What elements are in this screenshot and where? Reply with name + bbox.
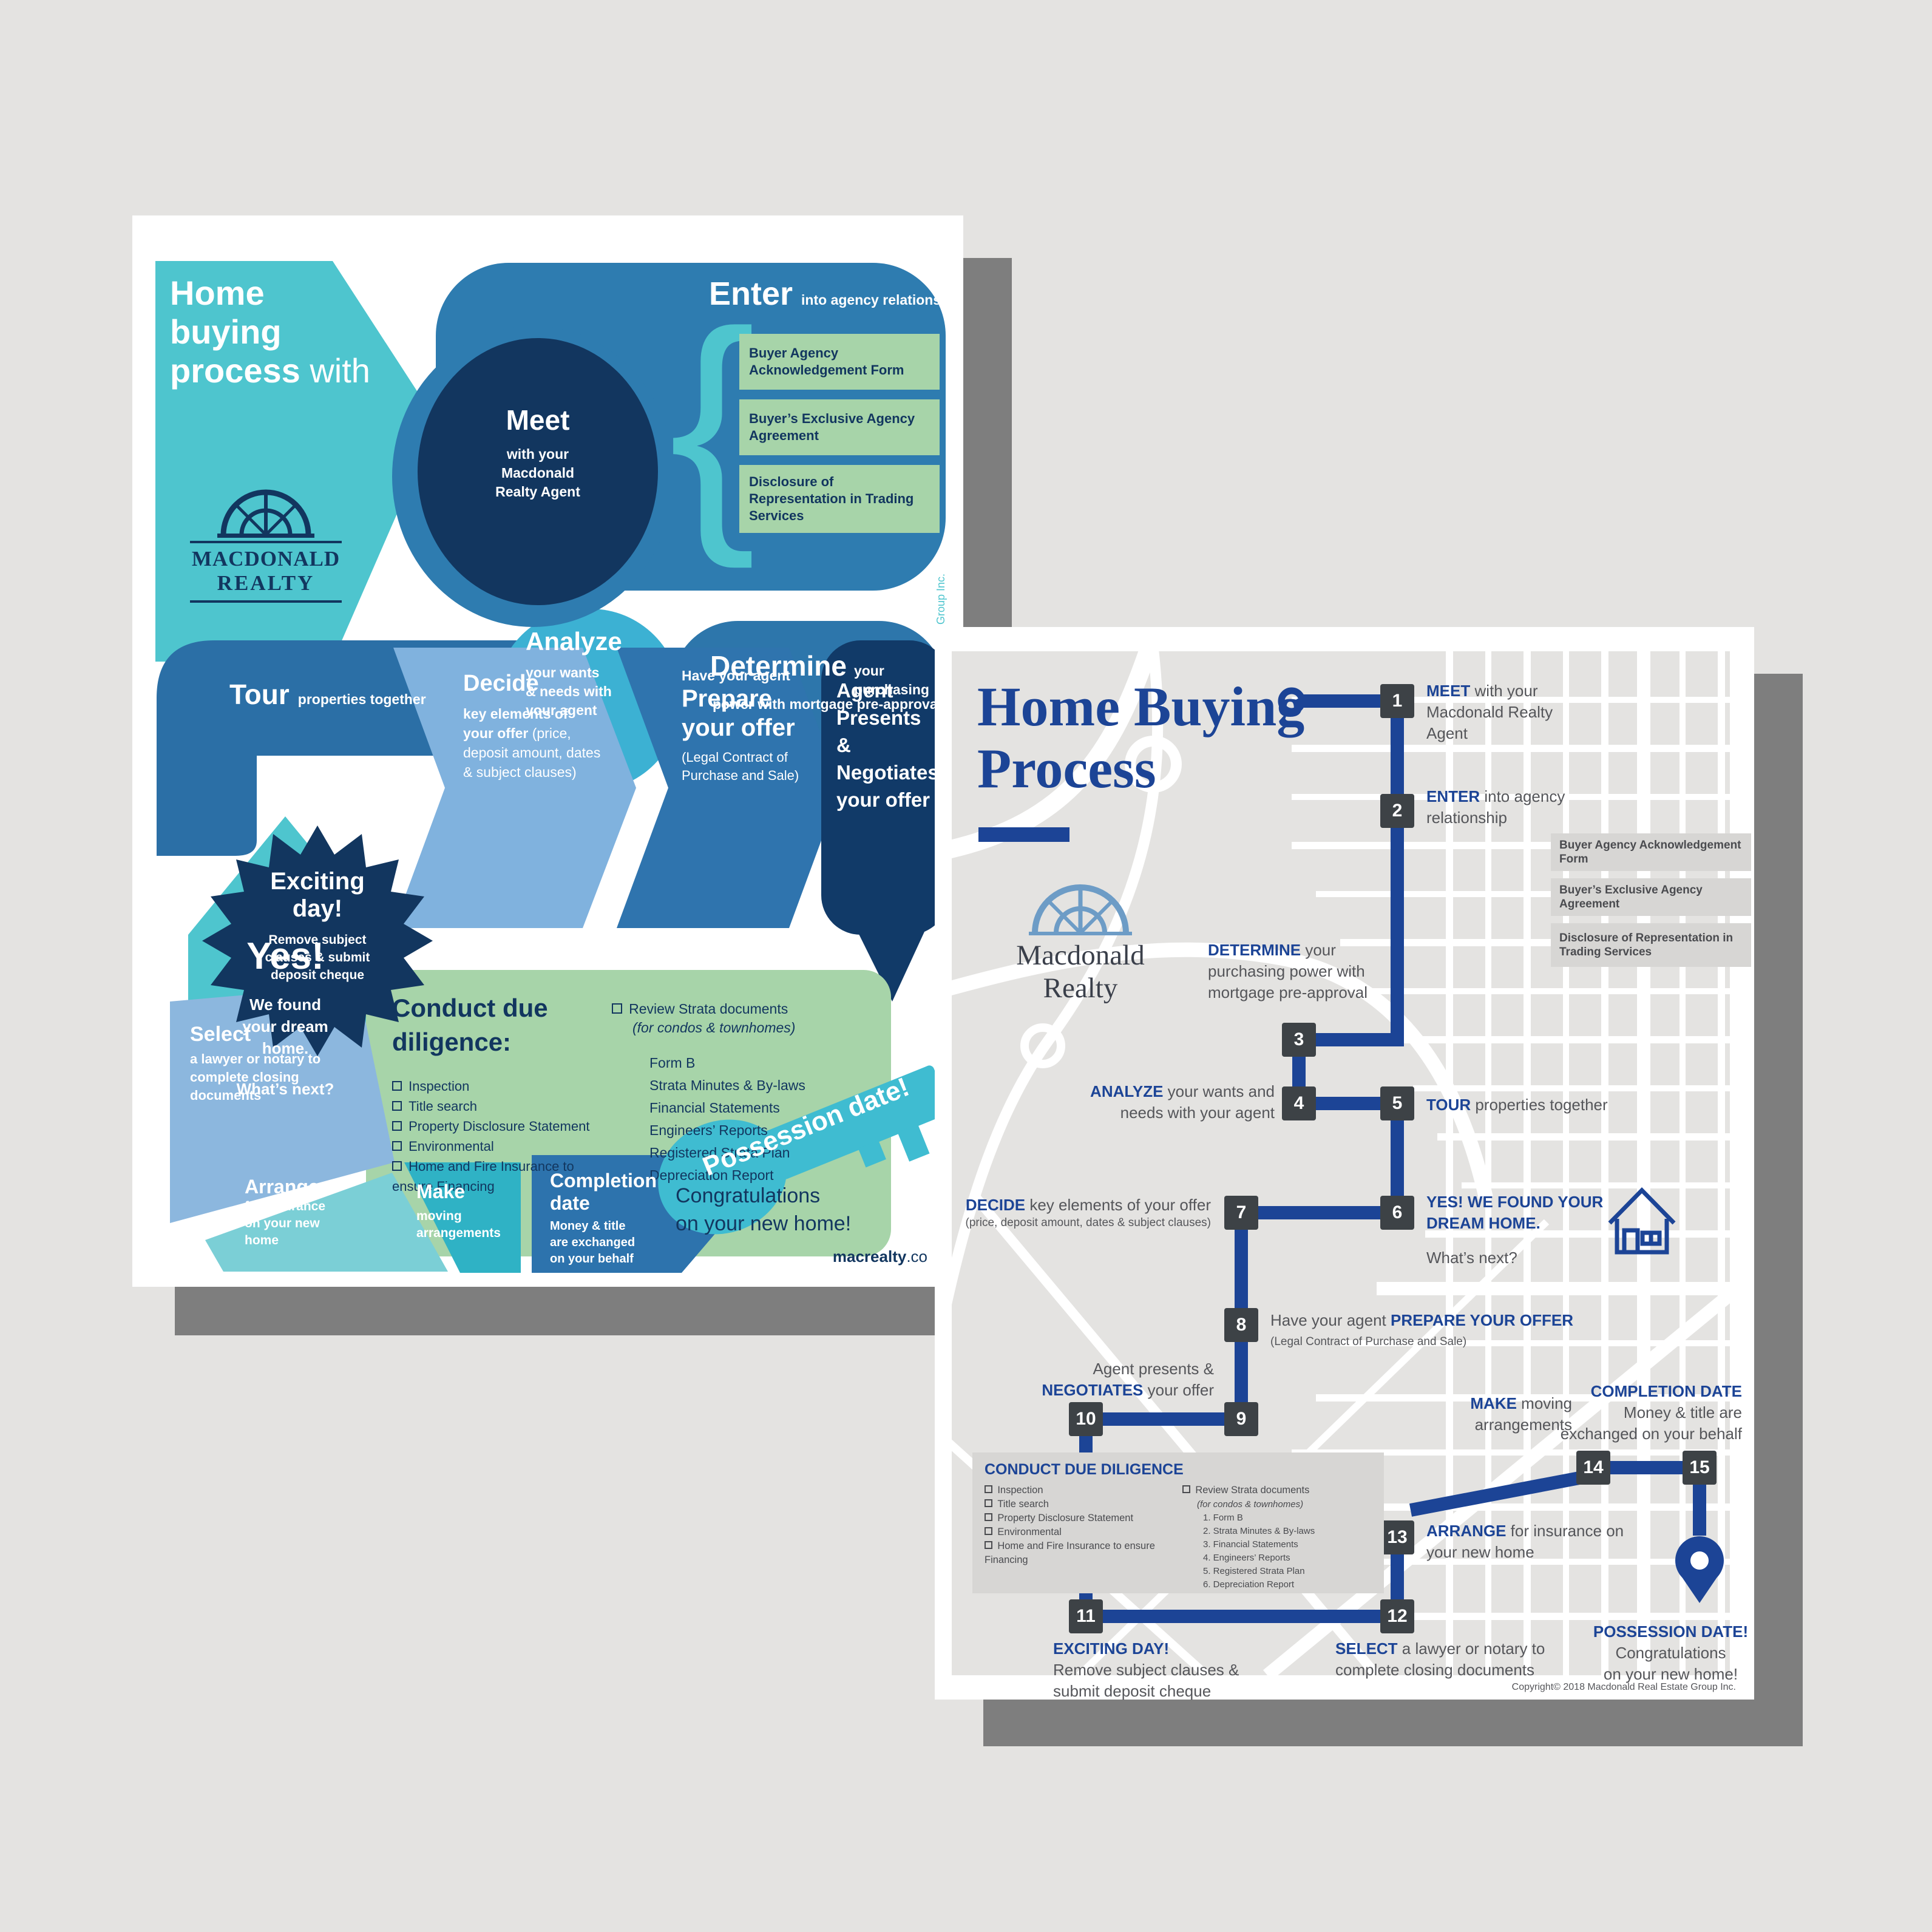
step-label-possession: POSSESSION DATE! Congratulations on your… [1587, 1621, 1754, 1685]
step-label-select: SELECT a lawyer or notary to complete cl… [1335, 1638, 1560, 1681]
step-label-enter: ENTER into agency relationship [1426, 786, 1608, 829]
map-pin-icon [1675, 1536, 1724, 1603]
diligence-item-inspection: Inspection [408, 1079, 469, 1094]
logo-arch-icon [214, 483, 317, 538]
select-sub-2: complete closing [190, 1068, 320, 1086]
step-square-2: 2 [1380, 794, 1414, 828]
exciting-sub-2: clauses & submit [232, 949, 402, 966]
step-label-analyze: ANALYZE your wants and needs with your a… [1074, 1081, 1275, 1124]
arrange-sub-3: home [245, 1232, 325, 1249]
meet-line1: with your [447, 445, 629, 464]
select-title: Select [190, 1023, 320, 1046]
checkbox-icon [612, 1000, 629, 1019]
exciting-step: Exciting day! Remove subject clauses & s… [232, 868, 402, 984]
exciting-title-1: Exciting [232, 868, 402, 895]
lp-title-with: with [300, 351, 370, 390]
arrange-sub-2: on your new [245, 1215, 325, 1232]
panel-right-list: Review Strata documents (for condos & to… [1182, 1483, 1368, 1591]
decide-title: Decide [463, 671, 606, 697]
step-square-5: 5 [1380, 1086, 1414, 1120]
decide-line2: your offer (price, [463, 724, 606, 743]
completion-sub-3: on your behalf [550, 1251, 657, 1267]
panel-item-insurance: Home and Fire Insurance to ensure Financ… [985, 1541, 1155, 1565]
prepare-title2: your offer [682, 713, 821, 742]
rp-title: Home Buying Process [977, 676, 1304, 799]
title-underline [978, 827, 1069, 842]
yes-line1: We found [188, 994, 382, 1015]
decide-line1: key elements of [463, 706, 568, 722]
due-diligence-panel: CONDUCT DUE DILIGENCE Inspection Title s… [972, 1452, 1384, 1593]
step-label-prepare: Have your agent PREPARE YOUR OFFER (Lega… [1270, 1310, 1647, 1349]
congratulations-line1: Congratulations [676, 1182, 851, 1210]
prepare-step: Have your agent Prepare your offer (Lega… [682, 668, 821, 785]
step-square-1: 1 [1380, 684, 1414, 718]
rp-macdonald-logo: Macdonald Realty [989, 875, 1171, 1005]
exciting-title-2: day! [232, 895, 402, 923]
analyze-title: Analyze [526, 627, 665, 656]
step-square-15: 15 [1683, 1451, 1717, 1485]
diligence-item-pds: Property Disclosure Statement [408, 1119, 589, 1134]
checkbox-icon [392, 1136, 408, 1156]
congratulations-text: Congratulations on your new home! [676, 1182, 851, 1238]
meet-line3: Realty Agent [447, 483, 629, 501]
panel-item-environmental: Environmental [997, 1527, 1061, 1537]
lp-title-line2: buying [170, 313, 370, 351]
agent-line1: Agent [836, 677, 940, 704]
step-square-14: 14 [1576, 1451, 1610, 1485]
checkbox-icon [985, 1511, 997, 1525]
lp-title-line1: Home [170, 274, 370, 313]
step-square-6: 6 [1380, 1196, 1414, 1230]
logo-text-1: MACDONALD [190, 541, 342, 571]
completion-step: Completion date Money & title are exchan… [550, 1170, 657, 1267]
step-label-yes-next: What’s next? [1426, 1247, 1608, 1269]
strata-item-form-b: Form B [649, 1052, 873, 1074]
rp-logo-arch-icon [1023, 875, 1138, 935]
enter-sub: into agency relationship [801, 291, 962, 310]
doc-box-1: Buyer Agency Acknowledgement Form [739, 334, 940, 390]
diligence-item-environmental: Environmental [408, 1139, 494, 1154]
prepare-pre: Have your agent [682, 668, 821, 684]
panel-strata-item-6: 6. Depreciation Report [1203, 1578, 1368, 1591]
route-node [1391, 871, 1404, 884]
checkbox-icon [392, 1076, 408, 1096]
rp-logo-text-1: Macdonald [989, 939, 1171, 972]
checkbox-icon [985, 1483, 997, 1497]
step-square-11: 11 [1069, 1599, 1103, 1633]
tour-step: Tour properties together [229, 678, 426, 711]
rp-title-line1: Home Buying [977, 676, 1304, 737]
step-square-4: 4 [1282, 1086, 1316, 1120]
panel-strata-item-1: 1. Form B [1203, 1511, 1368, 1525]
step-label-arrange: ARRANGE for insurance on your new home [1426, 1520, 1627, 1563]
step-square-8: 8 [1224, 1308, 1258, 1342]
step-label-meet: MEET with your Macdonald Realty Agent [1426, 680, 1572, 744]
rp-logo-text-2: Realty [989, 972, 1171, 1005]
step-square-3: 3 [1282, 1023, 1316, 1057]
checkbox-icon [392, 1156, 408, 1176]
prepare-title1: Prepare [682, 684, 821, 713]
checkbox-icon [985, 1539, 997, 1553]
lp-title: Home buying process with [170, 274, 370, 390]
diligence-title-1: Conduct due [392, 991, 548, 1025]
select-sub-1: a lawyer or notary to [190, 1050, 320, 1068]
tour-sub: properties together [298, 690, 426, 709]
logo-text-2: REALTY [190, 571, 342, 603]
step-square-10: 10 [1069, 1402, 1103, 1436]
step-label-yes: YES! WE FOUND YOUR DREAM HOME. What’s ne… [1426, 1191, 1608, 1269]
panel-strata-note: (for condos & townhomes) [1197, 1497, 1368, 1511]
select-step: Select a lawyer or notary to complete cl… [190, 1023, 320, 1105]
arrange-title: Arrange [245, 1176, 325, 1198]
diligence-title: Conduct due diligence: [392, 991, 548, 1059]
meet-step: Meet with your Macdonald Realty Agent [447, 404, 629, 501]
rp-doc-box-2: Buyer’s Exclusive Agency Agreement [1551, 878, 1751, 916]
step-square-12: 12 [1380, 1599, 1414, 1633]
step-label-decide: DECIDE key elements of your offer (price… [947, 1195, 1211, 1230]
right-poster: Home Buying Process Macdonald Realty 1 2… [935, 627, 1754, 1700]
step-label-negotiates: Agent presents & NEGOTIATES your offer [1014, 1358, 1214, 1401]
completion-title-1: Completion [550, 1170, 657, 1192]
step-label-tour: TOUR properties together [1426, 1094, 1633, 1116]
website-url: macrealty.co [776, 1247, 927, 1266]
step-square-9: 9 [1224, 1402, 1258, 1436]
doc-box-3-label: Disclosure of Representation in Trading … [749, 473, 930, 524]
make-sub-1: moving [416, 1208, 501, 1225]
agent-line2: Presents & [836, 704, 940, 759]
macdonald-realty-logo: MACDONALD REALTY [190, 483, 342, 603]
step-label-completion: COMPLETION DATEMoney & title are exchang… [1548, 1381, 1742, 1445]
panel-item-inspection: Inspection [997, 1485, 1043, 1496]
left-poster: Home buying process with MACDONALD REALT… [132, 215, 963, 1287]
route-node [1391, 912, 1404, 926]
diligence-strata-head: Review Strata documents [629, 1001, 788, 1017]
checkbox-icon [392, 1096, 408, 1116]
checkbox-icon [392, 1116, 408, 1136]
arrange-step: Arrange for insurance on your new home [245, 1176, 325, 1249]
panel-strata-item-3: 3. Financial Statements [1203, 1538, 1368, 1551]
agent-line3: Negotiates [836, 759, 940, 786]
house-icon [1610, 1190, 1674, 1252]
exciting-sub-3: deposit cheque [232, 966, 402, 984]
step-square-13: 13 [1380, 1520, 1414, 1554]
decide-line4: & subject clauses) [463, 762, 606, 782]
tour-title: Tour [229, 678, 290, 711]
step-label-determine: DETERMINE your purchasing power with mor… [1208, 940, 1396, 1003]
doc-box-1-label: Buyer Agency Acknowledgement Form [749, 345, 930, 379]
agent-step: Agent Presents & Negotiates your offer [836, 677, 940, 813]
diligence-item-title-search: Title search [408, 1099, 477, 1114]
diligence-strata-note: (for condos & townhomes) [632, 1019, 873, 1037]
rp-doc-box-1: Buyer Agency Acknowledgement Form [1551, 833, 1751, 871]
panel-title: CONDUCT DUE DILIGENCE [985, 1461, 1372, 1479]
prepare-note1: (Legal Contract of [682, 748, 821, 767]
checkbox-icon [985, 1497, 997, 1511]
rp-title-line2: Process [977, 737, 1304, 799]
panel-strata-item-4: 4. Engineers’ Reports [1203, 1551, 1368, 1565]
congratulations-line2: on your new home! [676, 1210, 851, 1238]
make-step: Make moving arrangements [416, 1181, 501, 1242]
make-sub-2: arrangements [416, 1225, 501, 1242]
canvas: Home buying process with MACDONALD REALT… [0, 0, 1932, 1932]
agent-line4: your offer [836, 786, 940, 813]
step-square-7: 7 [1224, 1196, 1258, 1230]
doc-box-3: Disclosure of Representation in Trading … [739, 465, 940, 533]
meet-title: Meet [447, 404, 629, 436]
checkbox-icon [985, 1525, 997, 1539]
rp-doc-box-3: Disclosure of Representation in Trading … [1551, 923, 1751, 967]
completion-title-2: date [550, 1192, 657, 1215]
make-title: Make [416, 1181, 501, 1203]
panel-strata-item-2: 2. Strata Minutes & By-laws [1203, 1525, 1368, 1538]
panel-strata-head: Review Strata documents [1195, 1485, 1309, 1496]
exciting-sub-1: Remove subject [232, 931, 402, 949]
panel-strata-item-5: 5. Registered Strata Plan [1203, 1565, 1368, 1578]
panel-left-list: Inspection Title search Property Disclos… [985, 1483, 1167, 1591]
diligence-title-2: diligence: [392, 1025, 548, 1059]
checkbox-icon [1182, 1483, 1195, 1497]
completion-sub-2: are exchanged [550, 1235, 657, 1251]
step-label-exciting: EXCITING DAY!Remove subject clauses & su… [1053, 1638, 1259, 1702]
arrange-sub-1: for insurance [245, 1198, 325, 1215]
prepare-note2: Purchase and Sale) [682, 767, 821, 785]
panel-item-title-search: Title search [997, 1499, 1049, 1510]
lp-title-line3: process with [170, 351, 370, 390]
step-note-prepare: (Legal Contract of Purchase and Sale) [1270, 1335, 1647, 1349]
meet-line2: Macdonald [447, 464, 629, 483]
doc-box-2-label: Buyer’s Exclusive Agency Agreement [749, 410, 930, 444]
panel-item-pds: Property Disclosure Statement [997, 1513, 1133, 1524]
completion-sub-1: Money & title [550, 1218, 657, 1235]
decide-step: Decide key elements of your offer (price… [463, 671, 606, 782]
step-note-decide: (price, deposit amount, dates & subject … [947, 1216, 1211, 1230]
doc-box-2: Buyer’s Exclusive Agency Agreement [739, 399, 940, 455]
decide-line3: deposit amount, dates [463, 743, 606, 762]
select-sub-3: documents [190, 1086, 320, 1105]
